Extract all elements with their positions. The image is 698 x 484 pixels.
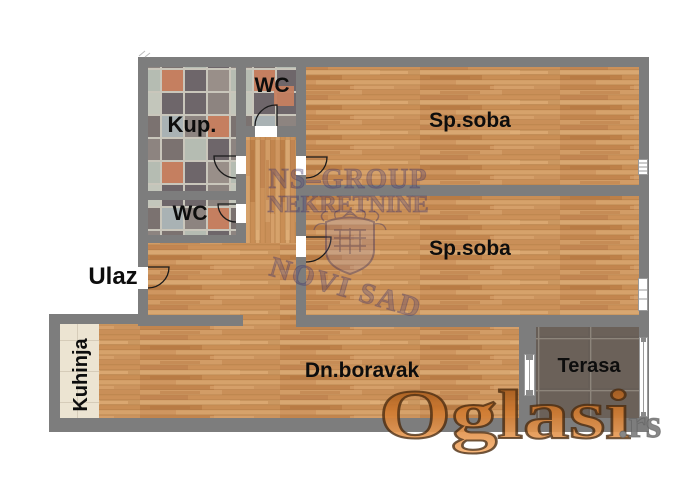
svg-text:Sp.soba: Sp.soba (429, 109, 511, 132)
svg-text:Sp.soba: Sp.soba (429, 237, 511, 260)
svg-text:.rs: .rs (618, 401, 661, 446)
svg-text:Kuhinja: Kuhinja (70, 337, 92, 411)
svg-text:NS–GROUP: NS–GROUP (269, 164, 428, 195)
svg-text:Kup.: Kup. (168, 112, 217, 137)
svg-text:Ulaz: Ulaz (88, 263, 137, 290)
svg-text:Terasa: Terasa (557, 355, 621, 377)
svg-text:WC: WC (173, 202, 208, 225)
svg-text:WC: WC (255, 74, 290, 97)
svg-text:Oglasi: Oglasi (379, 377, 631, 454)
